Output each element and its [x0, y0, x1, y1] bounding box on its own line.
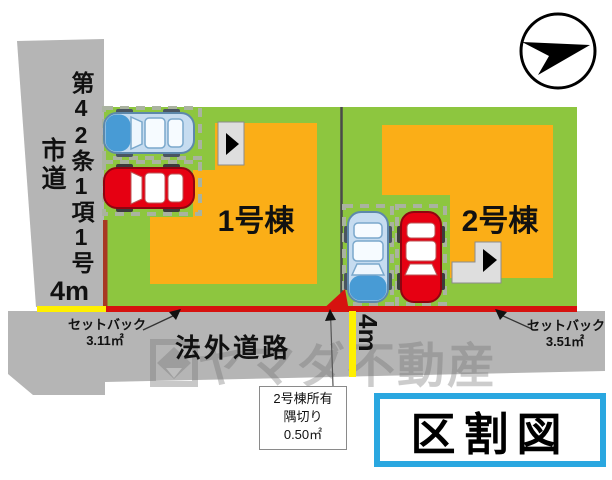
- corner-cut-type: 隅切り: [260, 408, 346, 426]
- corner-cut-area: 0.50㎡: [260, 426, 346, 444]
- diagram-title-box: 区割図: [374, 393, 606, 467]
- car-red-lot1: [104, 164, 194, 212]
- north-arrow-icon: [521, 14, 595, 88]
- lot-2-label: 2号棟: [456, 196, 544, 240]
- car-red-lot2: [397, 212, 445, 302]
- plot-division-diagram: ヤマダ不動産: [0, 0, 612, 480]
- left-road-width-label: 4m: [50, 276, 89, 307]
- car-blue-lot1: [104, 109, 194, 157]
- setback-right-label: セットバック: [518, 318, 612, 334]
- lot-1-label: 1号棟: [212, 196, 300, 240]
- bottom-road-name-label: 法外道路: [158, 328, 308, 365]
- setback-right-area: 3.51㎡: [527, 334, 603, 350]
- setback-left-label: セットバック: [59, 317, 155, 333]
- corner-cut-owner: 2号棟所有: [260, 390, 346, 408]
- bottom-road-width-label: 4m: [352, 314, 383, 376]
- car-blue-lot2: [344, 212, 392, 302]
- left-road-name-label: 市道: [34, 137, 70, 199]
- corner-cut-callout: 2号棟所有 隅切り 0.50㎡: [259, 386, 347, 450]
- setback-line-left-road: [103, 220, 108, 307]
- entrance-arrow-icon: [218, 122, 244, 165]
- setback-left-area: 3.11㎡: [67, 333, 143, 349]
- diagram-title: 区割図: [410, 398, 569, 463]
